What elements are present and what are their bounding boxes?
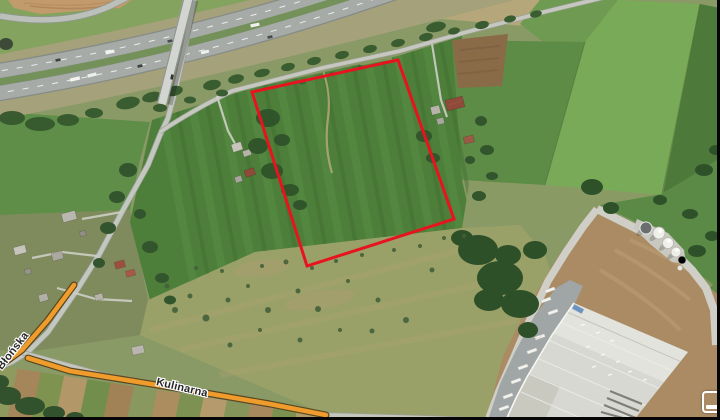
satellite-imagery [0,0,720,420]
satellite-map[interactable]: Błońska Kulinarna [0,0,720,420]
